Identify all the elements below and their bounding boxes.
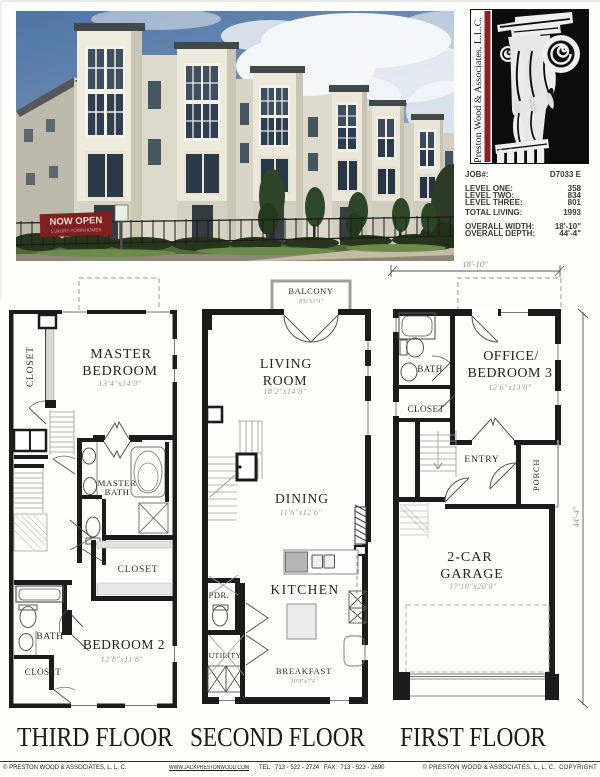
svg-text:NOW OPEN: NOW OPEN xyxy=(49,215,102,228)
svg-text:ENTRY: ENTRY xyxy=(464,455,499,465)
svg-text:GARAGE: GARAGE xyxy=(440,567,503,582)
svg-text:BEDROOM 3: BEDROOM 3 xyxy=(467,366,552,381)
svg-text:18'-10": 18'-10" xyxy=(462,259,488,269)
svg-text:12'6"x13'0": 12'6"x13'0" xyxy=(488,383,531,392)
svg-text:UTILITY: UTILITY xyxy=(209,651,242,660)
svg-text:BREAKFAST: BREAKFAST xyxy=(276,666,332,676)
svg-text:BATH: BATH xyxy=(417,364,443,374)
svg-text:PORCH: PORCH xyxy=(531,459,541,491)
svg-text:CLOSET: CLOSET xyxy=(26,346,36,387)
svg-text:BALCONY: BALCONY xyxy=(288,286,333,296)
svg-text:SECOND FLOOR: SECOND FLOOR xyxy=(190,722,365,752)
svg-text:CLOSET: CLOSET xyxy=(118,565,159,575)
svg-text:KITCHEN: KITCHEN xyxy=(270,582,339,597)
svg-text:2-CAR: 2-CAR xyxy=(447,550,492,565)
svg-text:DINING: DINING xyxy=(275,491,329,506)
svg-text:LIVING: LIVING xyxy=(260,356,312,371)
svg-text:OFFICE/: OFFICE/ xyxy=(483,349,539,364)
svg-text:CLOSET: CLOSET xyxy=(407,404,444,414)
svg-text:THIRD FLOOR: THIRD FLOOR xyxy=(17,722,173,752)
svg-text:44'-4": 44'-4" xyxy=(571,506,581,527)
svg-text:PDR.: PDR. xyxy=(209,590,230,600)
svg-text:BATH: BATH xyxy=(36,632,63,642)
svg-text:CLOSET: CLOSET xyxy=(25,667,62,677)
svg-text:13'4"x14'0": 13'4"x14'0" xyxy=(98,379,141,388)
svg-text:BATH: BATH xyxy=(105,487,130,497)
svg-text:18'2"x14'0": 18'2"x14'0" xyxy=(263,387,306,396)
svg-text:BEDROOM: BEDROOM xyxy=(82,364,158,379)
svg-text:BEDROOM 2: BEDROOM 2 xyxy=(83,637,165,652)
svg-text:11'6"x12'6": 11'6"x12'6" xyxy=(280,508,323,517)
svg-text:FIRST FLOOR: FIRST FLOOR xyxy=(400,722,546,752)
svg-text:17'10"x20'0": 17'10"x20'0" xyxy=(449,582,497,591)
svg-text:8'6"x3'4": 8'6"x3'4" xyxy=(299,298,323,305)
svg-text:MASTER: MASTER xyxy=(90,347,152,362)
svg-text:ROOM: ROOM xyxy=(263,373,308,388)
svg-text:10'8"x7'4": 10'8"x7'4" xyxy=(290,678,318,685)
svg-text:Preston Wood & Associates, L.L: Preston Wood & Associates, L.L.C. xyxy=(473,17,484,163)
svg-text:12'8"x11'8": 12'8"x11'8" xyxy=(101,655,144,664)
